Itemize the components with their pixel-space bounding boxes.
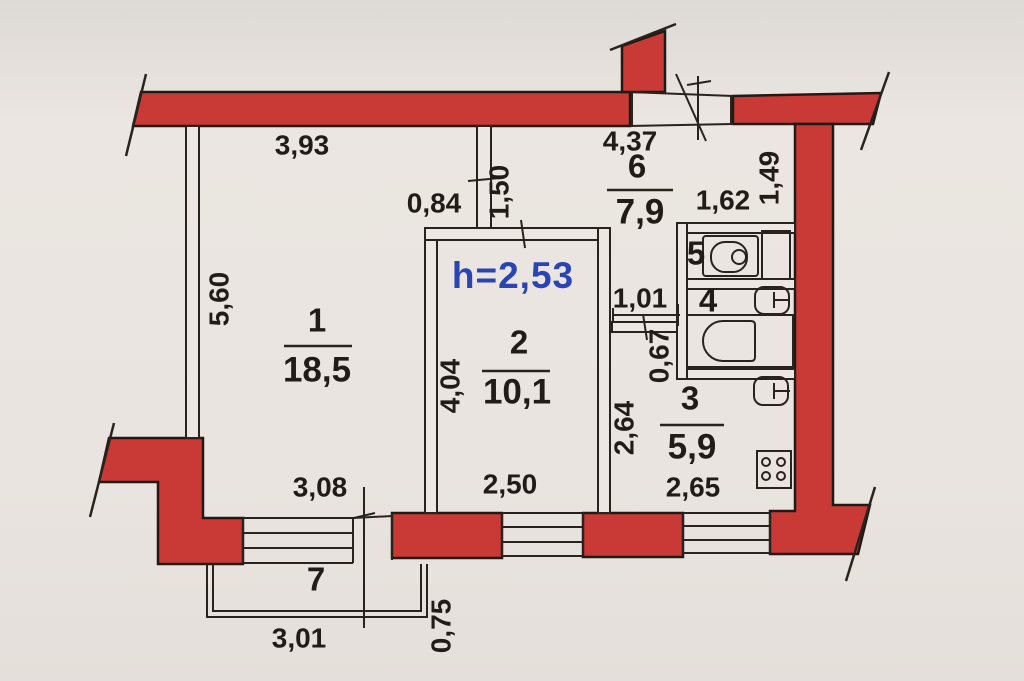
- room7-number: 7: [307, 561, 325, 598]
- wall-bottom-middle: [392, 513, 502, 558]
- dim-room2-bottom: 2,50: [483, 468, 538, 499]
- floor-plan-page: 1 18,5 2 10,1 3 5,9 6 7,9 4 5 7 h=2,53 3…: [0, 0, 1024, 681]
- dim-partition: 1,50: [483, 165, 514, 220]
- wall-top-right: [733, 93, 881, 124]
- room5-number: 5: [687, 235, 705, 272]
- room1-left-wall: [186, 126, 199, 438]
- dim-kitchen-left: 2,64: [608, 400, 639, 455]
- room2-number: 2: [510, 324, 528, 361]
- dim-corridor: 1,01: [613, 282, 668, 313]
- floor-plan-drawing: 1 18,5 2 10,1 3 5,9 6 7,9 4 5 7 h=2,53 3…: [0, 0, 1024, 681]
- wall-top-left: [133, 92, 630, 126]
- room2-right-wall: [598, 228, 610, 513]
- ceiling-height-label: h=2,53: [452, 255, 574, 296]
- dim-bath-side: 0,67: [643, 329, 674, 384]
- dim-room2-left: 4,04: [434, 358, 465, 413]
- room3-area: 5,9: [668, 427, 717, 466]
- dim-opening-top: 0,84: [407, 187, 462, 218]
- dim-balcony-bottom: 3,01: [272, 622, 327, 653]
- dim-room1-left: 5,60: [203, 272, 234, 327]
- room6-area: 7,9: [616, 192, 665, 231]
- bathroom-left-wall: [677, 223, 687, 379]
- dim-room1-bottom: 3,08: [293, 471, 348, 502]
- room3-number: 3: [681, 380, 699, 417]
- dim-room1-top: 3,93: [275, 129, 330, 160]
- room4-number: 4: [699, 282, 718, 319]
- dim-balcony-side: 0,75: [425, 599, 456, 654]
- room2-top-wall: [425, 228, 605, 240]
- dim-toilet-top: 1,62: [696, 184, 751, 215]
- dim-hall-top: 4,37: [603, 125, 658, 156]
- dim-kitchen-bottom: 2,65: [666, 471, 721, 502]
- room1-number: 1: [308, 302, 326, 339]
- wall-bottom-kitchen-left: [583, 513, 683, 557]
- room2-area: 10,1: [483, 372, 551, 411]
- dim-entry-side: 1,49: [753, 151, 784, 206]
- room1-area: 18,5: [283, 350, 351, 389]
